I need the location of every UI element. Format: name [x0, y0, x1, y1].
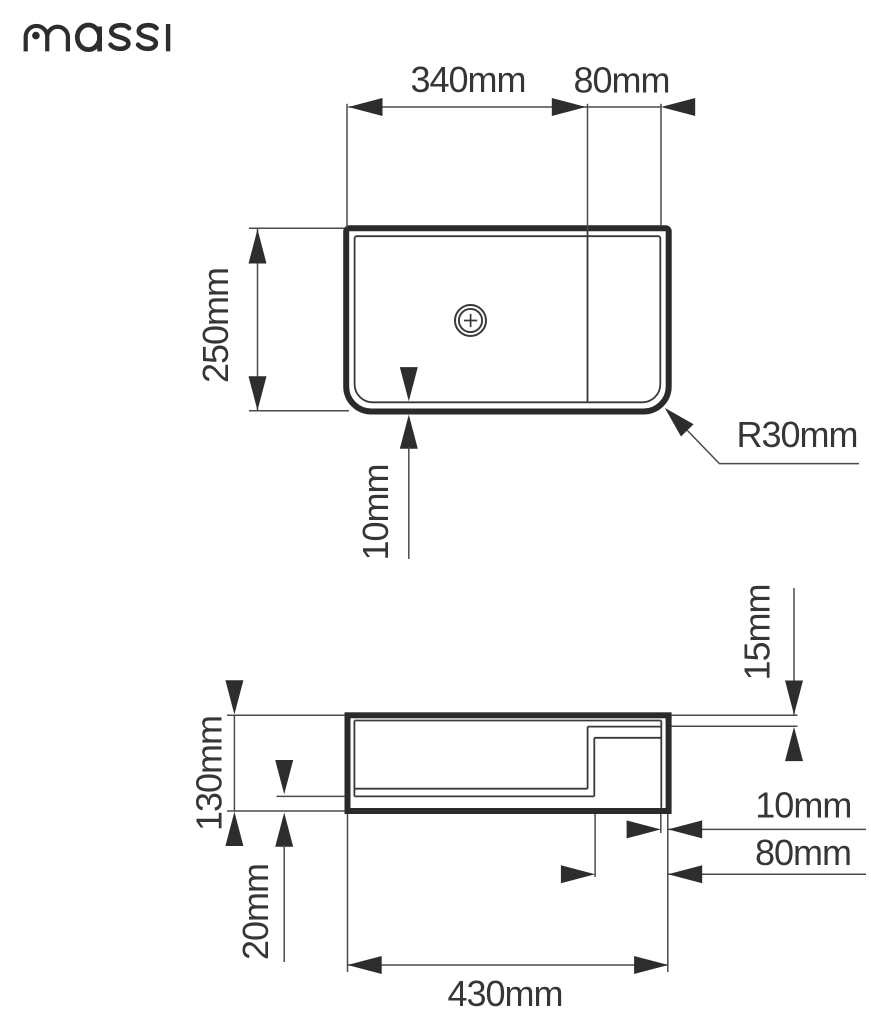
svg-text:340mm: 340mm [410, 59, 525, 100]
svg-text:R30mm: R30mm [736, 414, 857, 455]
svg-text:10mm: 10mm [755, 785, 851, 826]
svg-text:15mm: 15mm [737, 584, 778, 680]
svg-text:250mm: 250mm [195, 268, 236, 383]
svg-text:10mm: 10mm [355, 464, 396, 560]
svg-text:80mm: 80mm [573, 59, 669, 100]
svg-text:20mm: 20mm [235, 864, 276, 960]
svg-text:430mm: 430mm [447, 973, 562, 1014]
svg-text:130mm: 130mm [189, 716, 230, 831]
svg-text:80mm: 80mm [755, 832, 851, 873]
